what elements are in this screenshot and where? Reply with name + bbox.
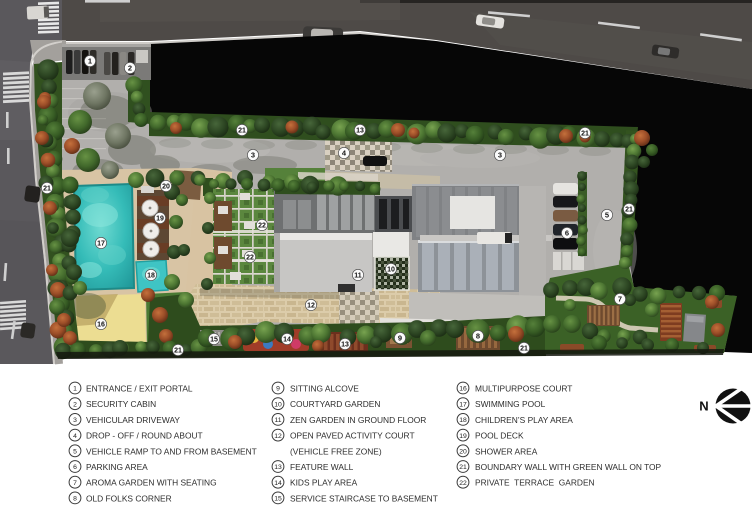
svg-text:10: 10 [274,401,282,408]
svg-text:N: N [699,399,708,414]
svg-text:7: 7 [618,295,622,304]
svg-text:11: 11 [354,273,362,280]
svg-text:OLD FOLKS CORNER: OLD FOLKS CORNER [86,493,172,503]
svg-text:21: 21 [520,346,528,353]
svg-text:3: 3 [498,151,502,160]
svg-text:OPEN PAVED ACTIVITY COURT: OPEN PAVED ACTIVITY COURT [290,431,415,441]
svg-text:VEHICLE RAMP TO AND FROM BASEM: VEHICLE RAMP TO AND FROM BASEMENT [86,446,257,456]
svg-text:17: 17 [97,241,105,248]
svg-text:14: 14 [283,337,291,344]
svg-text:SWIMMING POOL: SWIMMING POOL [475,399,546,409]
svg-text:21: 21 [238,128,246,135]
svg-text:9: 9 [276,386,280,393]
svg-text:13: 13 [341,342,349,349]
svg-text:POOL DECK: POOL DECK [475,431,524,441]
svg-text:3: 3 [73,417,77,424]
svg-text:2: 2 [73,401,77,408]
svg-text:6: 6 [73,464,77,471]
svg-text:19: 19 [156,216,164,223]
svg-text:7: 7 [73,480,77,487]
svg-text:11: 11 [274,417,281,424]
svg-text:20: 20 [459,449,467,456]
svg-text:AROMA GARDEN WITH SEATING: AROMA GARDEN WITH SEATING [86,478,217,488]
svg-text:14: 14 [274,480,282,487]
svg-text:SECURITY CABIN: SECURITY CABIN [86,399,156,409]
svg-text:8: 8 [476,332,480,341]
svg-text:9: 9 [398,334,402,343]
svg-text:ENTRANCE / EXIT PORTAL: ENTRANCE / EXIT PORTAL [86,384,193,394]
svg-text:ZEN GARDEN IN GROUND FLOOR: ZEN GARDEN IN GROUND FLOOR [290,415,426,425]
svg-text:22: 22 [459,480,467,487]
svg-text:VEHICULAR DRIVEWAY: VEHICULAR DRIVEWAY [86,415,180,425]
svg-text:BOUNDARY WALL WITH GREEN WALL: BOUNDARY WALL WITH GREEN WALL ON TOP [475,462,662,472]
svg-text:SHOWER AREA: SHOWER AREA [475,446,538,456]
svg-text:3: 3 [251,151,255,160]
svg-text:21: 21 [625,207,633,214]
svg-text:21: 21 [174,348,182,355]
svg-text:CHILDREN’S PLAY AREA: CHILDREN’S PLAY AREA [475,415,573,425]
svg-text:12: 12 [274,433,282,440]
svg-text:PARKING AREA: PARKING AREA [86,462,148,472]
svg-text:21: 21 [459,464,467,471]
svg-text:MULTIPURPOSE COURT: MULTIPURPOSE COURT [475,384,572,394]
svg-text:22: 22 [246,255,254,262]
svg-text:8: 8 [73,496,77,503]
svg-text:COURTYARD GARDEN: COURTYARD GARDEN [290,399,380,409]
svg-text:1: 1 [88,57,92,66]
svg-text:5: 5 [73,449,77,456]
svg-text:6: 6 [565,229,569,238]
svg-text:13: 13 [274,464,282,471]
svg-text:SITTING ALCOVE: SITTING ALCOVE [290,384,359,394]
svg-text:2: 2 [128,64,132,73]
svg-text:16: 16 [459,386,467,393]
svg-text:15: 15 [210,337,218,344]
svg-text:DROP - OFF / ROUND ABOUT: DROP - OFF / ROUND ABOUT [86,431,203,441]
svg-text:22: 22 [258,223,266,230]
svg-text:10: 10 [387,267,395,274]
svg-text:PRIVATE TERRACE GARDEN: PRIVATE TERRACE GARDEN [475,478,595,488]
svg-text:21: 21 [581,131,589,138]
svg-text:5: 5 [605,211,609,220]
svg-text:17: 17 [459,401,467,408]
svg-text:4: 4 [73,433,77,440]
svg-text:SERVICE STAIRCASE TO BASEMENT: SERVICE STAIRCASE TO BASEMENT [290,493,438,503]
svg-text:15: 15 [274,496,282,503]
svg-text:FEATURE WALL: FEATURE WALL [290,462,354,472]
svg-text:KIDS PLAY AREA: KIDS PLAY AREA [290,478,358,488]
svg-text:1: 1 [73,386,77,393]
svg-text:18: 18 [147,273,155,280]
svg-text:12: 12 [307,303,315,310]
svg-text:21: 21 [43,186,51,193]
svg-text:16: 16 [97,322,105,329]
svg-text:18: 18 [459,417,467,424]
svg-text:13: 13 [356,128,364,135]
svg-text:(VEHICLE FREE ZONE): (VEHICLE FREE ZONE) [290,446,382,456]
svg-text:20: 20 [162,184,170,191]
svg-text:19: 19 [459,433,467,440]
